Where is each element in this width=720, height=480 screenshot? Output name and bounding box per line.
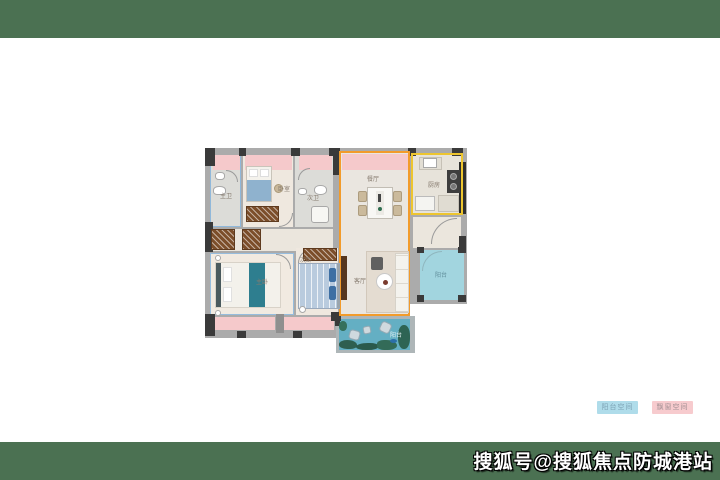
kitchen-counter [438,195,459,212]
room-label-second-bedroom: 次卧 [300,258,312,264]
coffee-table-decor [383,280,388,285]
plant [339,321,347,331]
pillow [260,169,269,177]
column [291,148,300,156]
blanket [247,180,271,201]
room-label-kitchen: 厨房 [428,183,440,189]
column [237,331,246,338]
dining-chair [358,205,367,216]
plant [339,340,357,349]
bay-window-strip [283,317,334,330]
room-label-second-bath: 次卫 [307,196,319,202]
vase [378,194,381,202]
coffee-table [376,273,393,290]
dining-chair [393,205,402,216]
burner [450,173,457,180]
kitchen-sink [423,158,437,168]
dining-chair [358,191,367,202]
headboard [337,264,340,308]
sink [215,172,225,180]
room-label-master-bath: 主卫 [220,194,232,200]
pillow [329,268,336,282]
room-label-balcony-bottom: 阳台 [390,333,402,339]
nightstand [215,255,221,261]
bed [246,166,272,202]
bay-window-strip [214,317,275,330]
column [458,247,466,253]
room-label-balcony-right: 阳台 [435,273,447,279]
column [417,247,424,253]
sofa [395,253,409,312]
dining-chair [393,191,402,202]
armchair [371,257,383,270]
column [205,148,215,166]
sink [298,188,307,195]
fish-decor [390,339,397,343]
column [205,314,215,336]
bathtub [311,206,329,223]
stool [299,306,306,313]
tv-cabinet [341,256,347,300]
plant [356,343,378,350]
pillow [223,267,232,282]
page: 主卫 卧室 次卫 主卧 次卧 餐厅 厨房 客厅 阳台 阳台 阳台空间 飘窗空间 … [0,0,720,480]
column [293,331,302,338]
wardrobe [211,229,235,250]
column [276,314,284,333]
column [458,295,466,302]
toilet [314,185,327,195]
second-bed [298,263,340,309]
room-label-living: 客厅 [354,279,366,285]
column [239,148,246,156]
room-label-bedroom: 卧室 [278,187,290,193]
pillow [223,287,232,302]
master-bed [215,262,281,308]
headboard [216,263,221,307]
dining-table [367,187,393,219]
nightstand [215,310,221,316]
legend-chip-balcony-space: 阳台空间 [597,401,638,414]
bay-window-strip [299,155,332,170]
pillow [249,169,258,177]
bay-window-strip [213,155,240,170]
column [417,295,424,302]
pillow [329,286,336,300]
wardrobe [246,206,279,222]
stove [447,170,460,193]
plant [378,207,382,211]
top-band [0,0,720,38]
rock [362,325,371,334]
watermark: 搜狐号@搜狐焦点防城港站 [473,447,713,474]
legend-chip-baywindow-space: 飘窗空间 [652,401,693,414]
room-label-master-bedroom: 主卧 [256,280,268,286]
burner [450,183,457,190]
fridge [415,196,435,211]
room-label-dining: 餐厅 [367,177,379,183]
wardrobe [242,229,261,250]
